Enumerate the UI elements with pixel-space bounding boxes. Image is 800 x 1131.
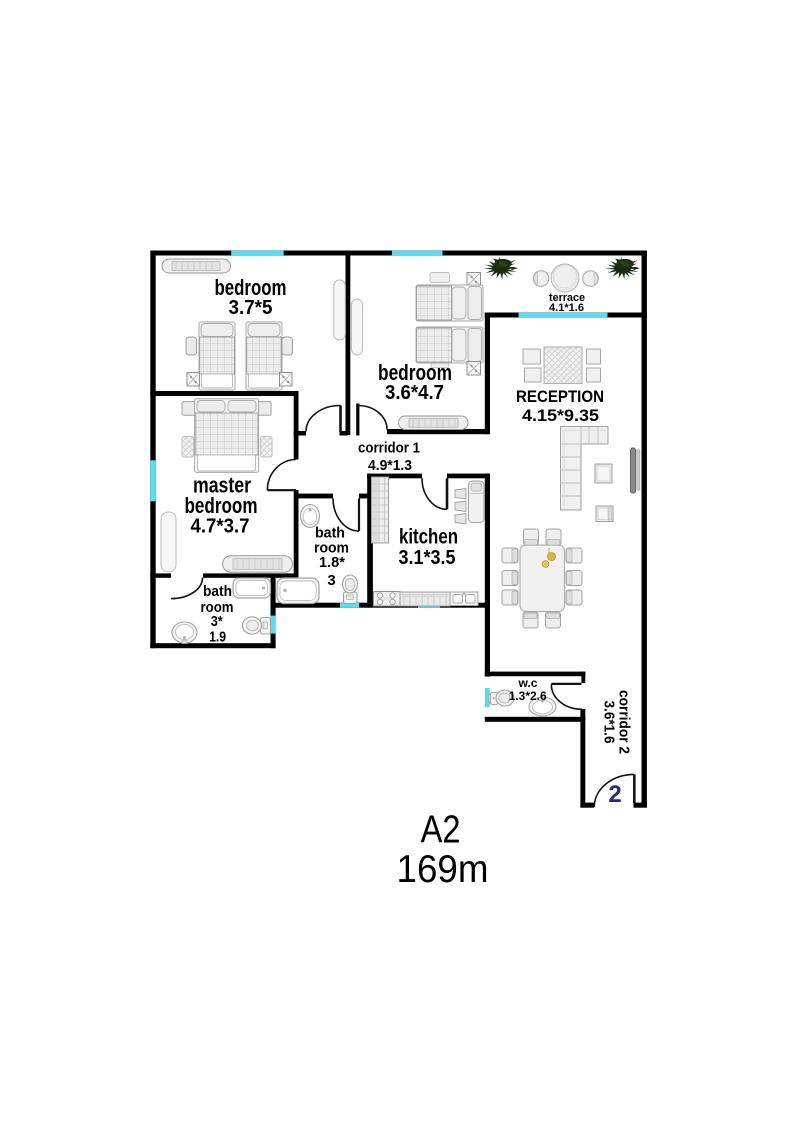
svg-text:2: 2	[608, 781, 621, 808]
svg-text:4.7*3.7: 4.7*3.7	[191, 515, 250, 537]
svg-text:3.1*3.5: 3.1*3.5	[399, 547, 456, 569]
svg-text:4.1*1.6: 4.1*1.6	[549, 302, 584, 314]
svg-text:3.6*1.6: 3.6*1.6	[601, 701, 618, 744]
svg-text:A2: A2	[421, 809, 461, 852]
svg-text:3: 3	[327, 572, 335, 589]
svg-text:w.c: w.c	[517, 676, 537, 690]
svg-text:3.7*5: 3.7*5	[229, 297, 273, 319]
svg-text:1.8*: 1.8*	[319, 554, 345, 571]
svg-text:1.9: 1.9	[209, 628, 226, 645]
svg-text:bedroom: bedroom	[185, 493, 258, 518]
svg-text:RECEPTION: RECEPTION	[516, 387, 604, 406]
svg-text:4.15*9.35: 4.15*9.35	[522, 406, 599, 425]
svg-text:bath: bath	[203, 583, 232, 600]
svg-text:corridor 1: corridor 1	[358, 440, 420, 457]
svg-text:4.9*1.3: 4.9*1.3	[368, 457, 412, 474]
svg-text:169m: 169m	[397, 848, 489, 891]
svg-text:1.3*2.6: 1.3*2.6	[509, 689, 547, 703]
svg-text:3.6*4.7: 3.6*4.7	[385, 382, 444, 404]
svg-text:kitchen: kitchen	[399, 526, 458, 549]
